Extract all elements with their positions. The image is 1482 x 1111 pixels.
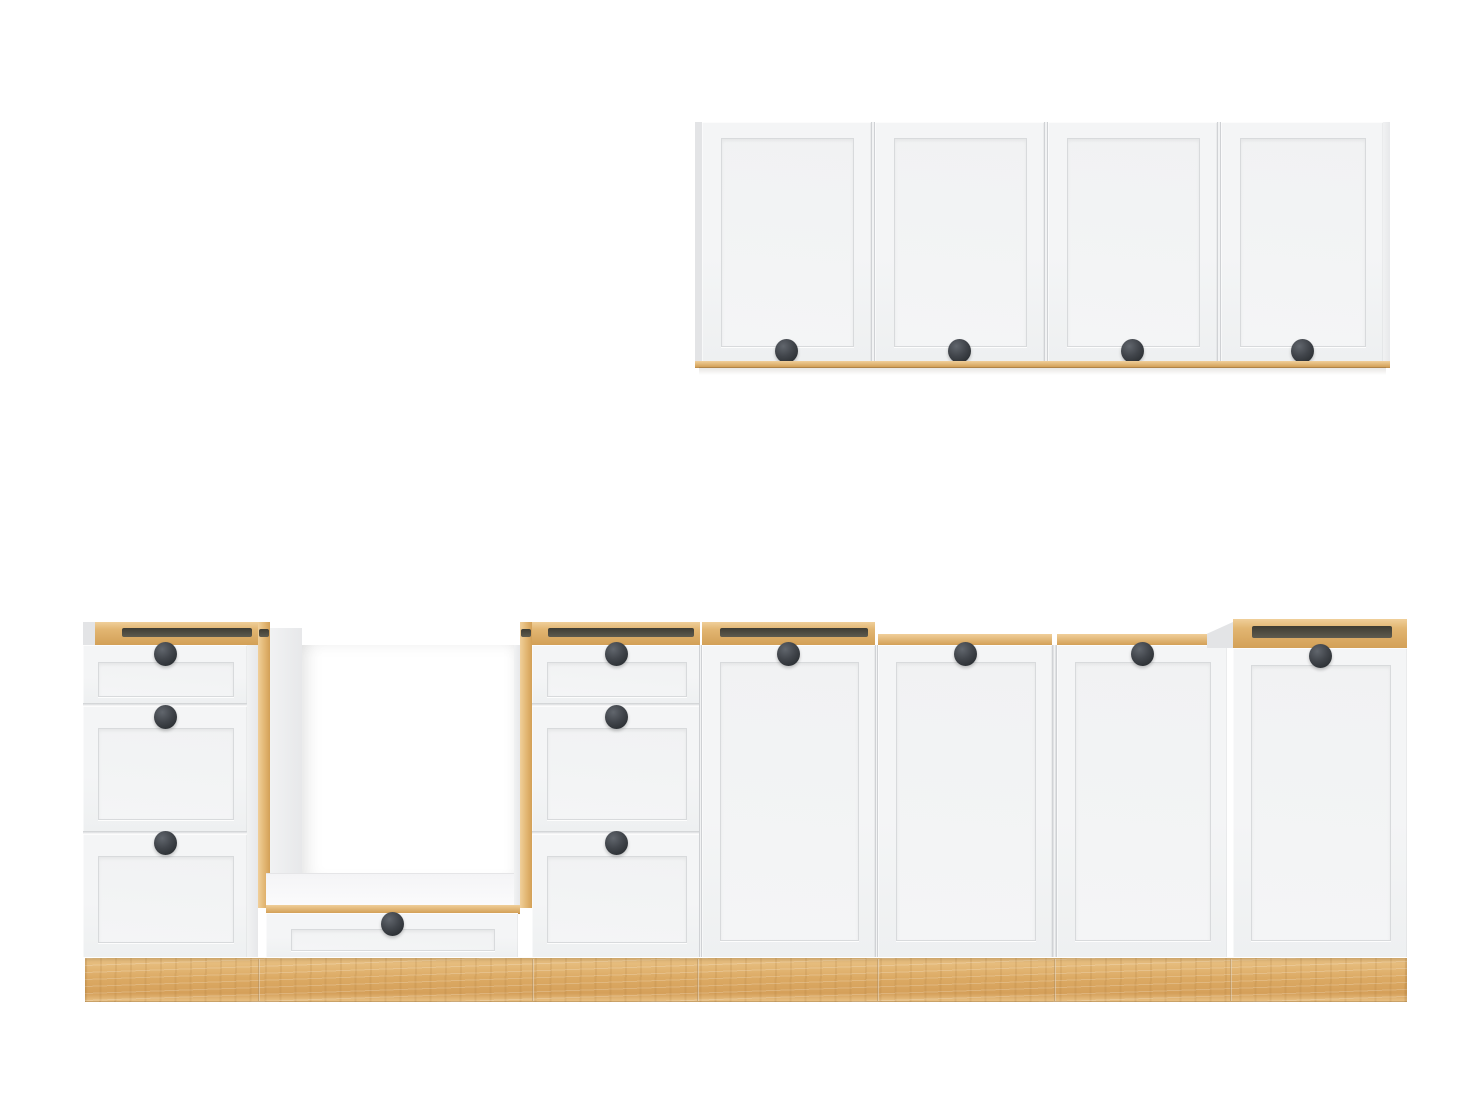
base-door-right-top-opening: [1252, 626, 1392, 638]
oven-housing-niche: [302, 645, 514, 873]
base-door-right-knob: [1309, 644, 1332, 668]
base-door-2-knob: [954, 642, 977, 666]
drawer-unit-left-drawer-panel-2: [98, 728, 234, 820]
plinth: [85, 958, 1407, 1002]
kitchen-cabinet-set: [0, 0, 1482, 1111]
plinth-seam: [1054, 959, 1056, 1001]
drawer-unit-left-top-opening: [122, 628, 252, 637]
wall-door-4-knob: [1291, 339, 1314, 363]
drawer-unit-mid-knob-2: [605, 705, 628, 729]
base-door-right-left-side-top: [1207, 622, 1233, 648]
wall-door-3-panel: [1067, 138, 1200, 347]
oven-housing-left-edge-opening: [259, 629, 269, 637]
drawer-unit-left-knob-2: [154, 705, 177, 729]
base-door-1-top-opening: [720, 628, 868, 637]
wall-door-4-panel: [1240, 138, 1366, 347]
plinth-seam: [877, 959, 879, 1001]
base-door-1-knob: [777, 642, 800, 666]
drawer-unit-left-knob-1: [154, 642, 177, 666]
drawer-unit-mid-drawer-panel-3: [547, 856, 687, 943]
drawer-unit-left-left-edge: [83, 622, 95, 645]
oven-housing-right-edge: [520, 622, 532, 908]
drawer-unit-left-drawer-panel-1: [98, 662, 234, 697]
wall-door-1-knob: [775, 339, 798, 363]
oven-housing-niche-floor: [266, 873, 520, 905]
plinth-seam: [1230, 959, 1232, 1001]
wall-cabinet-left-edge: [695, 122, 702, 361]
plinth-seam: [258, 959, 260, 1001]
wall-door-gap: [1217, 122, 1221, 361]
base-front-gap: [875, 645, 878, 957]
wall-door-gap: [871, 122, 875, 361]
drawer-unit-left-side-panel: [247, 645, 258, 957]
wall-door-gap: [1044, 122, 1048, 361]
drawer-unit-left-drawer-panel-3: [98, 856, 234, 943]
wall-cabinet-shadow: [699, 367, 1386, 375]
base-door-3-knob: [1131, 642, 1154, 666]
base-door-right-panel: [1251, 665, 1391, 941]
wall-door-2-panel: [894, 138, 1027, 347]
wall-door-1-panel: [721, 138, 854, 347]
plinth-seam: [532, 959, 534, 1001]
oven-housing-left-side-face: [270, 628, 302, 908]
base-front-gap: [699, 645, 702, 957]
base-door-1-panel: [720, 662, 859, 941]
oven-housing-right-edge-opening: [521, 629, 531, 637]
base-door-3-panel: [1075, 662, 1211, 941]
oven-housing-knob: [381, 912, 404, 936]
drawer-unit-mid-knob-1: [605, 642, 628, 666]
wall-cabinet-right-panel: [1383, 122, 1390, 361]
wall-door-2-knob: [948, 339, 971, 363]
drawer-unit-mid-knob-3: [605, 831, 628, 855]
drawer-unit-mid-top-opening: [548, 628, 694, 637]
plinth-seam: [697, 959, 699, 1001]
drawer-unit-mid-drawer-panel-2: [547, 728, 687, 820]
oven-housing-left-edge: [258, 622, 270, 908]
drawer-unit-mid-drawer-panel-1: [547, 662, 687, 697]
base-door-2-panel: [896, 662, 1036, 941]
base-front-gap: [1052, 645, 1057, 957]
wall-door-3-knob: [1121, 339, 1144, 363]
drawer-unit-left-knob-3: [154, 831, 177, 855]
